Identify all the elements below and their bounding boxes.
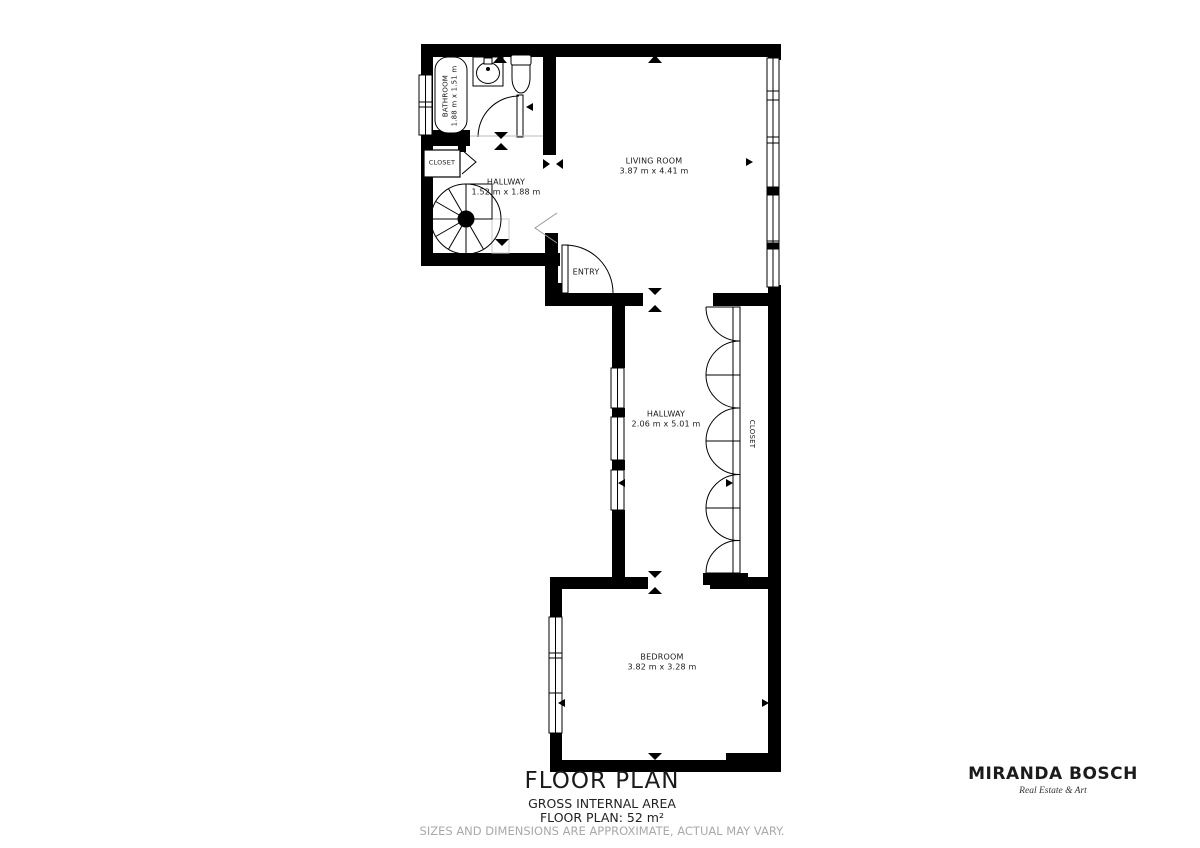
room-name: ENTRY (573, 267, 600, 277)
room-dims: 2.06 m x 5.01 m (631, 419, 700, 429)
floor-plan-drawing (0, 0, 1200, 848)
room-name: CLOSET (429, 159, 455, 167)
area-value: FLOOR PLAN: 52 m² (420, 811, 785, 825)
room-dims: 1.52 m x 1.88 m (471, 187, 540, 197)
room-dims: 3.87 m x 4.41 m (619, 166, 688, 176)
room-name: HALLWAY (631, 410, 700, 420)
disclaimer-text: SIZES AND DIMENSIONS ARE APPROXIMATE, AC… (420, 825, 785, 838)
living-room-label: LIVING ROOM 3.87 m x 4.41 m (619, 157, 688, 176)
room-name: HALLWAY (471, 178, 540, 188)
closet-main-doors (706, 307, 740, 573)
bedroom-label: BEDROOM 3.82 m x 3.28 m (627, 653, 696, 672)
room-dims: 1.88 m x 1.51 m (450, 66, 459, 127)
walls (421, 44, 781, 772)
page-title: FLOOR PLAN (420, 768, 785, 794)
toilet (511, 55, 531, 93)
hallway-upper-label: HALLWAY 1.52 m x 1.88 m (471, 178, 540, 197)
brand-logo: MIRANDA BOSCH Real Estate & Art (968, 764, 1138, 796)
area-heading: GROSS INTERNAL AREA (420, 797, 785, 811)
hallway-main-label: HALLWAY 2.06 m x 5.01 m (631, 410, 700, 429)
entry-label: ENTRY (573, 267, 600, 277)
footer: FLOOR PLAN GROSS INTERNAL AREA FLOOR PLA… (420, 768, 785, 838)
closet-main-label: CLOSET (746, 420, 756, 448)
room-name: BEDROOM (627, 653, 696, 663)
room-dims: 3.82 m x 3.28 m (627, 662, 696, 672)
brand-name: MIRANDA BOSCH (968, 764, 1138, 784)
brand-tagline: Real Estate & Art (968, 786, 1138, 796)
room-name: CLOSET (746, 420, 756, 448)
room-name: BATHROOM (442, 66, 451, 127)
bathroom-label: BATHROOM 1.88 m x 1.51 m (442, 66, 459, 127)
room-name: LIVING ROOM (619, 157, 688, 167)
hall-closet-label: CLOSET (429, 159, 455, 167)
